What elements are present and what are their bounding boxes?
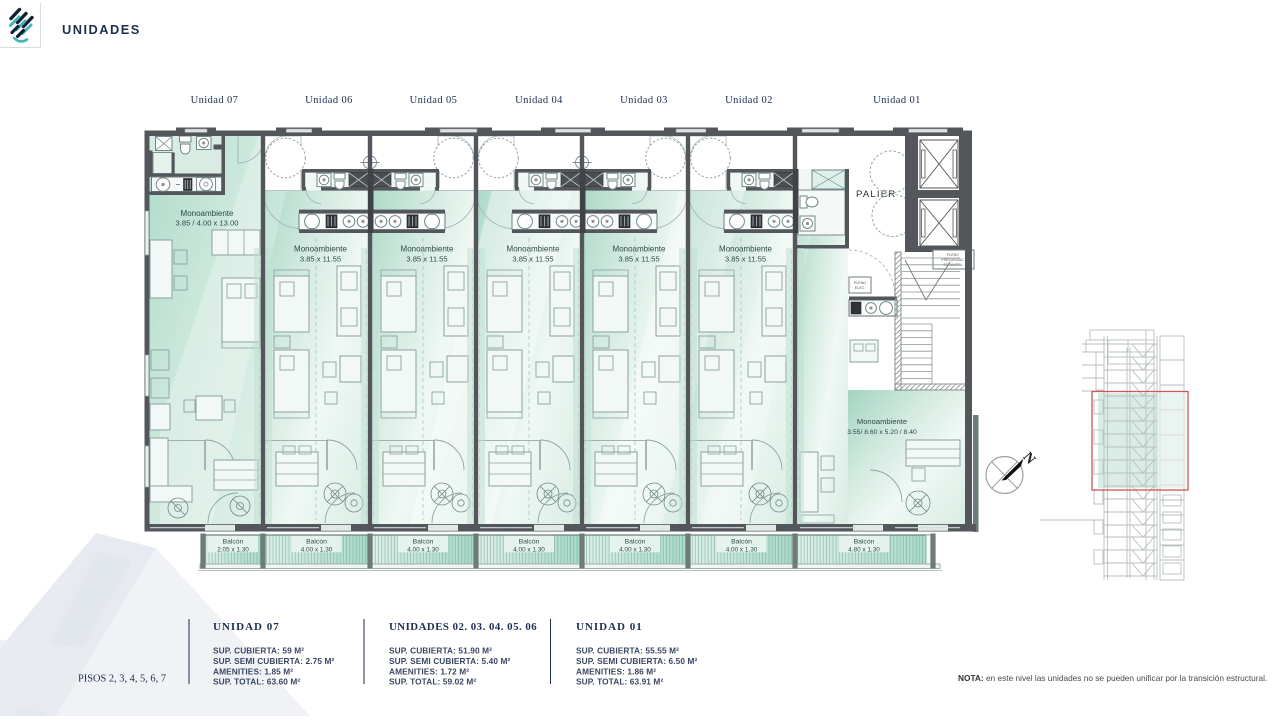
svg-text:UNIDADES 02. 03. 04. 05. 06: UNIDADES 02. 03. 04. 05. 06 — [389, 621, 537, 633]
svg-text:SUP. TOTAL: 63.91 M²: SUP. TOTAL: 63.91 M² — [576, 677, 663, 687]
svg-text:Monoambiente: Monoambiente — [181, 209, 234, 218]
svg-text:Monoambiente: Monoambiente — [507, 245, 560, 254]
svg-text:3.85 x 11.55: 3.85 x 11.55 — [618, 255, 659, 264]
svg-text:Balcón: Balcón — [306, 539, 327, 546]
svg-text:3.85 x 11.55: 3.85 x 11.55 — [512, 255, 553, 264]
svg-text:4.00 x 1.30: 4.00 x 1.30 — [619, 547, 651, 554]
svg-text:Balcón: Balcón — [519, 539, 540, 546]
svg-text:SUP. SEMI CUBIERTA: 2.75 M²: SUP. SEMI CUBIERTA: 2.75 M² — [213, 656, 334, 666]
svg-text:AMENITIES: 1.86 M²: AMENITIES: 1.86 M² — [576, 666, 656, 676]
svg-text:PRESURIZAC.: PRESURIZAC. — [941, 258, 965, 262]
svg-text:Monoambiente: Monoambiente — [719, 245, 772, 254]
svg-text:PISOS 2, 3, 4, 5, 6, 7: PISOS 2, 3, 4, 5, 6, 7 — [78, 674, 166, 685]
svg-text:Balcón: Balcón — [223, 539, 244, 546]
svg-text:Unidad 01: Unidad 01 — [873, 95, 921, 106]
svg-text:SUP. TOTAL: 63.60 M²: SUP. TOTAL: 63.60 M² — [213, 677, 300, 687]
svg-text:PLENO: PLENO — [854, 281, 866, 285]
svg-text:UNIDAD 01: UNIDAD 01 — [576, 621, 643, 633]
svg-text:Balcón: Balcón — [625, 539, 646, 546]
svg-text:UNIDADES: UNIDADES — [62, 22, 141, 37]
svg-text:Balcón: Balcón — [413, 539, 434, 546]
svg-text:Balcón: Balcón — [731, 539, 752, 546]
svg-text:SUP. CUBIERTA: 59 M²: SUP. CUBIERTA: 59 M² — [213, 646, 304, 656]
svg-text:AMENITIES: 1.72 M²: AMENITIES: 1.72 M² — [389, 666, 469, 676]
svg-text:4.00 x 1.30: 4.00 x 1.30 — [726, 547, 758, 554]
svg-text:Unidad 02: Unidad 02 — [725, 95, 773, 106]
svg-text:PLENO: PLENO — [947, 253, 959, 257]
svg-text:4.00 x 1.30: 4.00 x 1.30 — [301, 547, 333, 554]
svg-text:UNIDAD 07: UNIDAD 07 — [213, 621, 280, 633]
svg-text:SUP. SEMI CUBIERTA: 5.40 M²: SUP. SEMI CUBIERTA: 5.40 M² — [389, 656, 510, 666]
svg-text:NOTA: en este nivel las unidad: NOTA: en este nivel las unidades no se p… — [958, 673, 1267, 683]
svg-text:3.55/ 8.60 x 5.20 / 8.40: 3.55/ 8.60 x 5.20 / 8.40 — [847, 429, 917, 436]
svg-text:Monoambiente: Monoambiente — [294, 245, 347, 254]
svg-text:SUP. CUBIERTA: 55.55 M²: SUP. CUBIERTA: 55.55 M² — [576, 646, 679, 656]
svg-text:AMENITIES: 1.85 M²: AMENITIES: 1.85 M² — [213, 666, 293, 676]
svg-text:Monoambiente: Monoambiente — [613, 245, 666, 254]
svg-text:3.85 / 4.00 x 13.00: 3.85 / 4.00 x 13.00 — [176, 219, 239, 228]
svg-text:Unidad 07: Unidad 07 — [191, 95, 239, 106]
svg-text:SUP. CUBIERTA: 51.90 M²: SUP. CUBIERTA: 51.90 M² — [389, 646, 492, 656]
svg-text:4.80 x 1.30: 4.80 x 1.30 — [848, 547, 880, 554]
svg-text:PALIER: PALIER — [856, 189, 896, 200]
svg-text:Monoambiente: Monoambiente — [401, 245, 454, 254]
svg-text:3.85 x 11.55: 3.85 x 11.55 — [406, 255, 447, 264]
svg-text:4.00 x 1.30: 4.00 x 1.30 — [407, 547, 439, 554]
svg-text:4.00 x 1.30: 4.00 x 1.30 — [513, 547, 545, 554]
svg-text:3.85 x 11.55: 3.85 x 11.55 — [300, 255, 341, 264]
svg-text:Unidad 04: Unidad 04 — [515, 95, 563, 106]
svg-text:Unidad 03: Unidad 03 — [620, 95, 668, 106]
svg-text:SUP. SEMI CUBIERTA: 6.50 M²: SUP. SEMI CUBIERTA: 6.50 M² — [576, 656, 697, 666]
svg-text:Monoambiente: Monoambiente — [857, 417, 907, 426]
svg-text:Unidad 06: Unidad 06 — [305, 95, 353, 106]
svg-text:SUP. TOTAL: 59.02 M²: SUP. TOTAL: 59.02 M² — [389, 677, 476, 687]
svg-text:Balcón: Balcón — [854, 539, 875, 546]
svg-text:Unidad 05: Unidad 05 — [410, 95, 458, 106]
svg-text:2.05 x 1.30: 2.05 x 1.30 — [217, 547, 249, 554]
svg-text:3.85 x 11.55: 3.85 x 11.55 — [725, 255, 766, 264]
svg-text:ELEC.: ELEC. — [855, 286, 865, 290]
